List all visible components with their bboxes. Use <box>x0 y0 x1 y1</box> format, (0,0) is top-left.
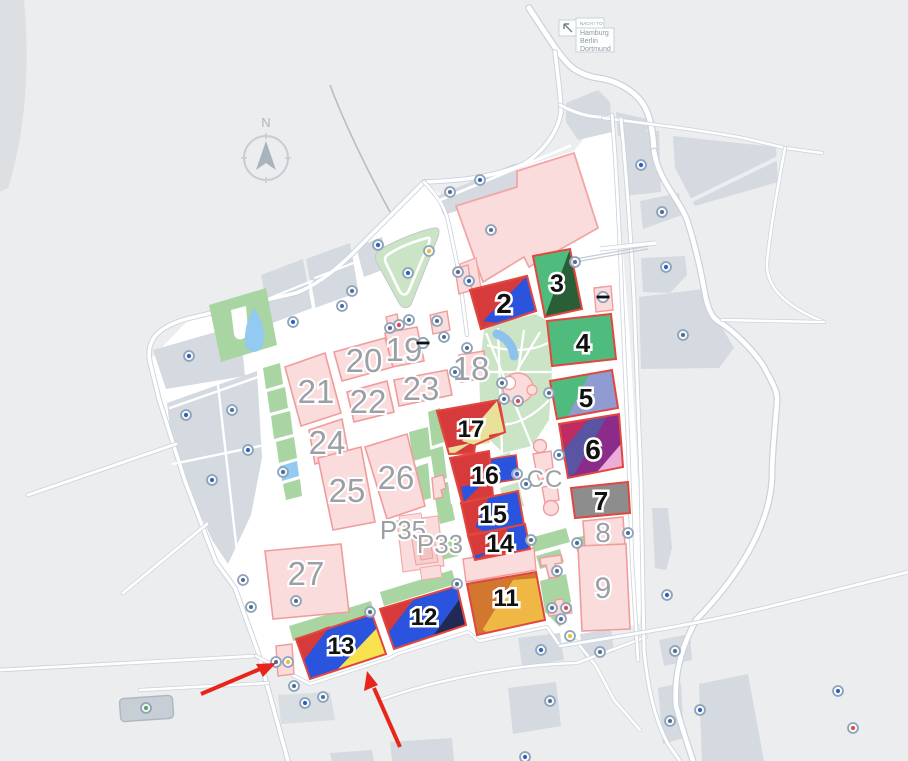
svg-text:19: 19 <box>386 331 423 368</box>
svg-text:Dortmund: Dortmund <box>580 46 611 53</box>
svg-text:2: 2 <box>496 288 512 319</box>
svg-text:16: 16 <box>471 462 499 490</box>
svg-text:5: 5 <box>579 383 593 413</box>
svg-text:11: 11 <box>493 585 518 612</box>
svg-text:22: 22 <box>350 383 387 420</box>
svg-text:12: 12 <box>411 604 438 631</box>
svg-text:8: 8 <box>595 517 611 548</box>
svg-text:23: 23 <box>403 370 440 407</box>
svg-text:17: 17 <box>458 416 485 443</box>
svg-text:21: 21 <box>298 373 335 410</box>
svg-text:9: 9 <box>595 572 612 605</box>
svg-text:20: 20 <box>346 342 383 379</box>
svg-text:25: 25 <box>329 472 366 509</box>
svg-text:Hamburg: Hamburg <box>580 30 609 37</box>
svg-text:6: 6 <box>585 434 601 465</box>
svg-text:4: 4 <box>576 328 591 358</box>
svg-text:7: 7 <box>594 486 608 516</box>
svg-text:P33: P33 <box>417 529 463 559</box>
svg-text:13: 13 <box>328 633 355 660</box>
svg-text:15: 15 <box>479 501 507 529</box>
svg-text:N: N <box>261 115 270 130</box>
svg-text:CC: CC <box>527 466 564 493</box>
svg-text:NACH / TO: NACH / TO <box>580 21 603 26</box>
svg-text:24: 24 <box>309 424 346 461</box>
svg-text:27: 27 <box>288 555 325 592</box>
svg-text:3: 3 <box>550 270 564 298</box>
svg-text:14: 14 <box>486 530 514 558</box>
svg-text:26: 26 <box>378 459 415 496</box>
svg-text:Berlin: Berlin <box>580 38 598 45</box>
